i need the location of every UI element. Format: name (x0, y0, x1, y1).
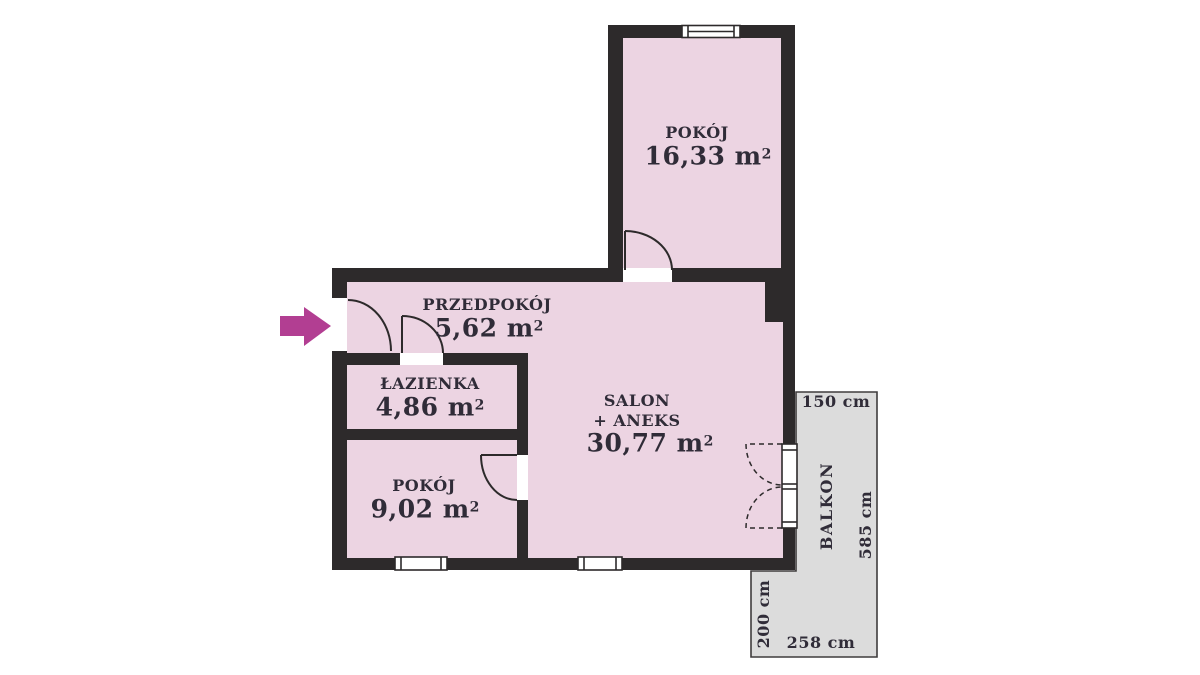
balcony-door-frame (782, 444, 797, 528)
room-area-salon: 30,77 m2 (587, 431, 714, 456)
balcony-dim-right: 585 cm (858, 491, 874, 560)
wall-lazienka-bottom (347, 429, 528, 440)
floor-plan-drawing (0, 0, 1200, 675)
window-top-pokoj (682, 26, 740, 38)
window-salon (578, 557, 622, 570)
room-label-przedpokoj: PRZEDPOKÓJ (422, 297, 551, 313)
opening-lazienka-door (400, 353, 443, 365)
balcony-dim-bottom: 258 cm (787, 635, 856, 651)
room-label-lazienka: ŁAZIENKA (380, 376, 479, 392)
balcony-label: BALKON (819, 462, 835, 550)
room-label-salon: SALON (604, 393, 670, 409)
window-pokoj-bottom (395, 557, 447, 570)
room-label-salon-aneks: + ANEKS (593, 413, 680, 429)
balcony-dim-top: 150 cm (802, 394, 871, 410)
room-label-pokoj-top: POKÓJ (665, 125, 728, 141)
floor-plan: POKÓJ 16,33 m2 PRZEDPOKÓJ 5,62 m2 ŁAZIEN… (0, 0, 1200, 675)
room-area-lazienka: 4,86 m2 (376, 395, 485, 420)
room-area-pokoj-top: 16,33 m2 (645, 144, 772, 169)
opening-top-pokoj-door (623, 268, 672, 282)
entrance-arrow-icon (280, 307, 331, 346)
opening-entrance (332, 298, 347, 351)
balcony-dim-left: 200 cm (756, 580, 772, 649)
wall-pillar-salon (765, 282, 795, 322)
opening-pokoj-door (517, 455, 528, 500)
room-area-pokoj-bottom: 9,02 m2 (371, 497, 480, 522)
room-area-przedpokoj: 5,62 m2 (435, 316, 544, 341)
room-label-pokoj-bottom: POKÓJ (392, 478, 455, 494)
